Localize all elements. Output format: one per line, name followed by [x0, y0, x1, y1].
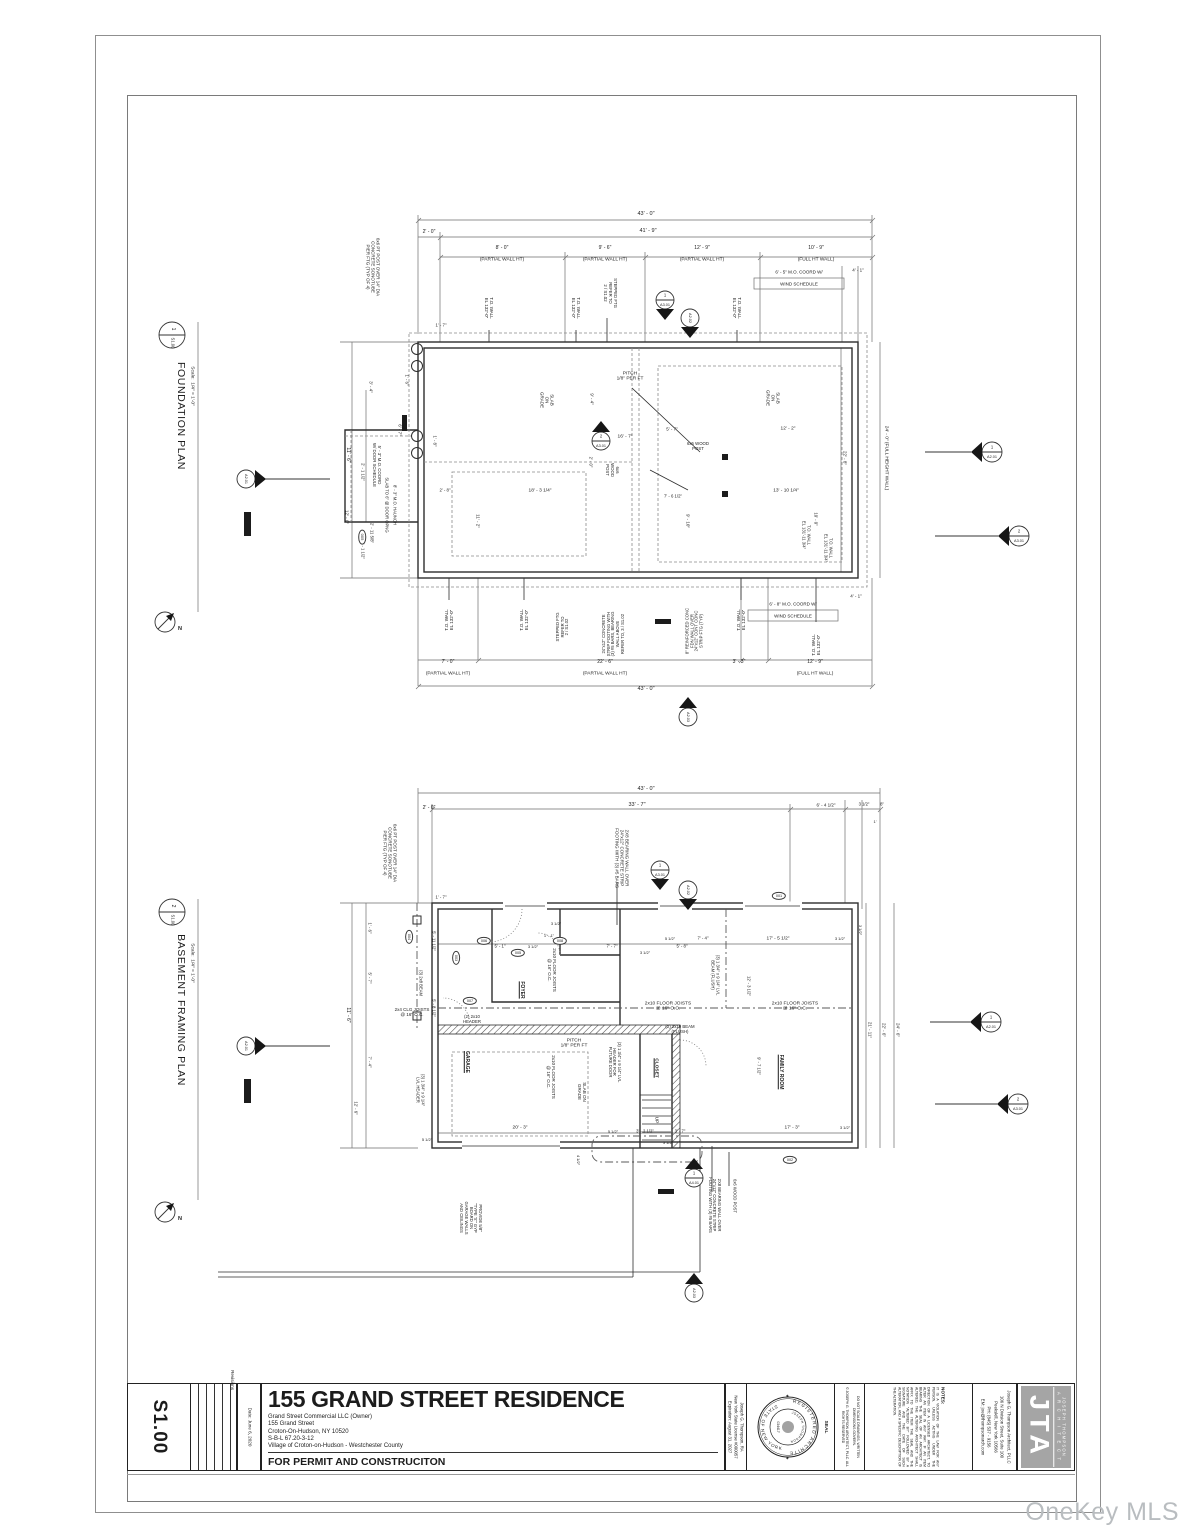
plan2-title: BASEMENT FRAMING PLAN [174, 934, 186, 1086]
plan-annotation: 13' - 10 1/4" [773, 488, 799, 493]
plan-annotation: 1 [991, 446, 993, 451]
plan1-callout-number: 1 [169, 328, 175, 331]
plan-annotation: 2x10 FLOOR JOISTS @ 16" O.C. [772, 1002, 818, 1013]
license-cell: Joseph G. Thompson, RANew York State Lic… [724, 1384, 746, 1470]
plan-annotation: (2) 2x10 BEAM (FLUSH) [665, 1025, 694, 1035]
plan-annotation: 5' - 11 1/2" [431, 931, 436, 951]
plan-annotation: 33' - 7" [628, 802, 645, 808]
firm-monogram: JTA [1026, 1387, 1053, 1467]
plan-annotation: 12' - 0" [344, 510, 349, 524]
plan-annotation: 8" [880, 803, 884, 808]
plan-annotation: (PARTIAL WALL HT) [426, 671, 470, 676]
text-line: 155 Grand Street [268, 1421, 718, 1428]
plan-annotation: A3.01 [1013, 1107, 1023, 1111]
plan-annotation: 16' - 7" [618, 434, 633, 439]
plan-annotation: (FULL HT WALL) [797, 671, 834, 676]
notes-label: NOTES: [940, 1387, 945, 1467]
plan-annotation: 2' - 0" [588, 457, 593, 468]
text-line: Peekskill, New York 10566 [991, 1386, 998, 1468]
plan-annotation: 3 1/2" [640, 951, 650, 955]
plan-annotation: 6x6 WOOD POST [732, 1179, 737, 1213]
plan-annotation: 2' - 0" [423, 806, 436, 812]
text-line: Joseph G. Thompson, RA [739, 1386, 745, 1468]
plan-annotation: A2.01 [987, 455, 997, 459]
plan-annotation: 5' - 7" [666, 426, 677, 431]
plan-annotation: T.O. WALL EL 132'-0" [519, 609, 529, 631]
plan-annotation: 1' - 7" [436, 896, 447, 901]
firm-logo-cell: JOSEPH THOMPSON A R C H I T E C T JTA [1016, 1384, 1074, 1470]
plan-annotation: 43' - 0" [637, 211, 654, 217]
plan-annotation: 3 1/2" [551, 922, 561, 926]
plan-annotation: 41' - 9" [639, 228, 656, 234]
plan-annotation: 11' - 6" [344, 447, 350, 462]
text-line: Grand Street Commercial LLC (Owner) [268, 1414, 718, 1421]
project-info-cell: 155 GRAND STREET RESIDENCE Grand Street … [260, 1384, 724, 1470]
plan-annotation: 5' - 7" [367, 973, 372, 984]
plan-annotation: (3) 1 3/4" x 9 1/4" LVL BEAM (FLUSH) [710, 955, 719, 996]
text-line: Joseph G. Thompson Architect, PLLC [1004, 1386, 1011, 1468]
plan-annotation: 2x10 FLOOR JOISTS @ 16" O.C. [547, 948, 557, 992]
plan-annotation: (3) 2x8 BEAM [418, 970, 423, 996]
plan-annotation: 2 [600, 435, 602, 440]
plan-annotation: 3 1/2" [858, 925, 862, 935]
plan-annotation: 3 1/2" [528, 945, 538, 949]
title-block-divider-line [127, 1474, 1075, 1475]
plan-annotation: 3 1/2" [840, 1126, 850, 1130]
plan-annotation: T.O. WALL EL 132'-0" [736, 609, 746, 631]
plan-annotation: 1 [990, 1016, 992, 1021]
plan-annotation: CLOSET [653, 1058, 658, 1077]
plan-annotation: 6' - 8" M.O. COORD W/ [769, 601, 816, 606]
plan-annotation: GARAGE [463, 1051, 469, 1073]
plan-annotation: T.O. WALL EL 132'-0" [811, 634, 821, 656]
plan-annotation: (PARTIAL WALL HT) [583, 257, 627, 262]
plan-annotation: 1' - 7" [436, 324, 447, 329]
plan-annotation: FAMILY ROOM [777, 1055, 783, 1090]
plan-annotation: 1' - 1" [544, 934, 554, 938]
firm-logo-box: JOSEPH THOMPSON A R C H I T E C T JTA [1021, 1386, 1071, 1468]
plan2-callout-sheet: S1.00 [170, 915, 175, 926]
plan-annotation: 4' - 1" [852, 267, 863, 272]
plan-annotation: T.O. WALL EL 132'-0" [732, 297, 742, 319]
license-info: Joseph G. Thompson, RANew York State Lic… [727, 1386, 744, 1468]
plan-annotation: 22' - 6" [597, 660, 613, 666]
plan-annotation: 1 [693, 1172, 695, 1177]
text-line: 106 N Division Street, Suite 100 [998, 1386, 1005, 1468]
plan-annotation: 22' - 6" [881, 1023, 886, 1037]
plan1-scale: Scale: 1/4" = 1'-0" [189, 366, 194, 405]
plan-annotation: 5' - 8 1/2" [431, 999, 436, 1017]
plan-annotation: A2.02 [688, 313, 692, 323]
plan-annotation: UP [653, 1117, 658, 1124]
firm-logo-content: JOSEPH THOMPSON A R C H I T E C T JTA [1026, 1387, 1067, 1467]
plan-annotation: 2 [1018, 530, 1020, 535]
plan-annotation: (FULL HT WALL) [798, 257, 835, 262]
plan-annotation: 7' - 4" [698, 937, 709, 942]
plan-annotation: (3) 1 3/4" x 9 1/4" LVL HEADER [415, 1074, 424, 1106]
plan-annotation: 6x6 PT POST OVER 14" DIA CONCRETE SONOTU… [365, 238, 380, 296]
plan-annotation: T.O. WALL EL 132'-0" [444, 609, 454, 631]
seal-label: SEAL [823, 1421, 828, 1434]
plan-annotation: 21' - 11" [867, 1022, 872, 1038]
plan-annotation: 1' - 6" [367, 923, 372, 934]
plan-annotation: A2.02 [686, 885, 690, 895]
do-not-scale-note: DO NOT SCALE DRAWINGS. WRITTEN DIMENSION… [851, 1386, 860, 1468]
plan-annotation: PROVIDE 5/8" "TYPE 'X'" GYP BOARD ON GAR… [458, 1201, 482, 1234]
seal-star-right: ★ [785, 1456, 790, 1461]
plan-annotation: (2) 2x10 HEADER [463, 1015, 481, 1025]
plan-annotation: 17' - 5 1/2" [767, 936, 790, 941]
plan-annotation: 2x10 FLOOR JOISTS @ 16" O.C. [546, 1055, 556, 1099]
plan-annotation: A4.01 [689, 1181, 699, 1185]
plan-annotation: 10' - 9" [808, 246, 824, 252]
plan-annotation: 2' - 8" [440, 489, 451, 494]
plan-annotation: 2' - 0" [423, 230, 436, 236]
plan-annotation: 7' - 4" [367, 1057, 372, 1068]
plan-annotation: 6' - 7" [397, 424, 402, 435]
plan-annotation: T.O. WALL EL 132'-0" [484, 297, 494, 319]
plan-annotation: 22' - 8" [842, 451, 847, 465]
plan-annotation: 8' - 0" [496, 246, 509, 252]
plan-annotation: A3.01 [596, 444, 606, 448]
plan-annotation: 1 [659, 864, 661, 869]
project-address: Grand Street Commercial LLC (Owner)155 G… [268, 1414, 718, 1452]
text-line: PH: (845) 537 - 9156 [985, 1386, 992, 1468]
plan-annotation: 5' - 1" [495, 945, 506, 950]
plan-annotation: WIND SCHEDULE [774, 613, 812, 618]
plan-annotation: (3) 1 3/4" x 9 1/4" LVL HEADER FOR FUTUR… [607, 1042, 621, 1083]
plan-annotation: A2.03 [692, 1288, 696, 1298]
plan-annotation: SLAB ON GRADE [539, 392, 554, 408]
plan-annotation: 18' - 3 1/4" [529, 488, 552, 493]
sheet-date: Date: June 6, 2020 [248, 1408, 253, 1447]
plan-annotation: A2.01 [244, 1041, 248, 1051]
plan-annotation: 005 [358, 530, 366, 545]
plan-annotation: 9' - 4" [589, 393, 594, 404]
plan-annotation: SLAB ON GRADE [765, 390, 780, 406]
plan-annotation: 3' - 7" [675, 1130, 686, 1135]
plan-annotation: 17' - 3" [785, 1125, 800, 1130]
plan-annotation: 3' - 4" [368, 381, 373, 392]
project-title: 155 GRAND STREET RESIDENCE [268, 1386, 718, 1413]
plan-annotation: 12' - 9" [694, 246, 710, 252]
plan-annotation: A2.01 [986, 1025, 996, 1029]
sheet-number: S1.00 [148, 1400, 170, 1455]
plan-annotation: N [178, 626, 182, 632]
copyright-note: © JOSEPH G. THOMPSON ARCHITECT, PLLC. AL… [840, 1386, 849, 1468]
plan-annotation: 20' - 3" [513, 1125, 528, 1130]
architect-seal: REGISTERED ARCHITECT STATE OF NEW YORK J… [751, 1390, 825, 1464]
plan-annotation: 3 1/2" [835, 937, 845, 941]
plan-annotation: 4 1/2" [576, 1155, 580, 1165]
plan-annotation: 7' - 6 1/2" [664, 495, 682, 500]
plan-annotation: 2X8 BEARING WALL OVER 24"x12" CONCRETE S… [707, 1177, 721, 1233]
architect-contact-cell: Joseph G. Thompson Architect, PLLC106 N … [972, 1384, 1016, 1470]
plan-annotation: 6' - 4 1/2" [817, 802, 836, 807]
plan-annotation: 3 1/2" [859, 803, 870, 808]
plan1-title: FOUNDATION PLAN [174, 362, 186, 470]
seal-star-left: ★ [785, 1394, 790, 1399]
plan-annotation: 2' - 11 5/8" [369, 523, 374, 543]
fine-print: DO NOT SCALE DRAWINGS. WRITTEN DIMENSION… [838, 1386, 862, 1468]
plan-annotation: 11' - 6" [344, 1007, 350, 1022]
plan-annotation: 9' - 6" [599, 246, 612, 252]
date-cell: Date: June 6, 2020 [236, 1384, 260, 1470]
plan-annotation: 3' - 3" [733, 660, 746, 666]
plan-annotation: A3.01 [1014, 539, 1024, 543]
plan-annotation: A2.01 [244, 474, 248, 484]
plan-annotation: 7' - 0" [442, 660, 455, 666]
plan-annotation: 24' - 6" [895, 1023, 900, 1037]
plan-annotation: 12' - 6" [353, 1101, 358, 1114]
plan-annotation: 6x6 WOOD POST [687, 442, 709, 452]
plan-annotation: T.O. WALL EL 131'-11 3/4" [823, 534, 832, 562]
sheet-number-cell: S1.00 [128, 1384, 190, 1470]
seal-license-number: 034417 [776, 1421, 780, 1432]
revisions-table: Revisions [190, 1384, 236, 1470]
plan-annotation: 1' - 8" [432, 436, 437, 447]
plan-annotation: PITCH 1/8" PER FT [617, 372, 644, 383]
plan-annotation: 6x6 WOOD POST [605, 463, 619, 477]
firm-discipline: A R C H I T E C T [1054, 1387, 1062, 1467]
plan-annotation: 5 1/2" [422, 1138, 432, 1142]
plan-annotation: 6' - 5" M.O. COORD W/ [775, 269, 822, 274]
plan-annotation: (PARTIAL WALL HT) [480, 257, 524, 262]
plan2-callout-number: 2 [169, 905, 175, 908]
plan-annotation: STEPPED FTG REFER TO 2 / S1.02 [556, 612, 570, 641]
plan-annotation: WIND SCHEDULE [780, 281, 818, 286]
plan-annotation: 1 [664, 294, 666, 299]
plan-annotation: 2x4 CLG JOISTS @ 16" O.C. [395, 1007, 430, 1017]
plan-annotation: PITCH 1/8" PER FT [561, 1039, 588, 1050]
plan-annotation: SLAB TO 6" @ DOOR OPNG [384, 477, 389, 532]
plan-annotation: 2X8 BEARING WALL OVER 24"x12" CONCRETE S… [614, 828, 629, 888]
plan-annotation: 1' - 6" [404, 375, 409, 386]
text-line: Croton-On-Hudson, NY 10520 [268, 1429, 718, 1436]
plan-annotation: 12' - 9" [807, 660, 823, 666]
plan-annotation: A3.01 [655, 873, 665, 877]
fine-print-cell: DO NOT SCALE DRAWINGS. WRITTEN DIMENSION… [834, 1384, 864, 1470]
plan-annotation: T.O. WALL EL 131'-11 3/4" [801, 521, 810, 549]
plan-annotation: A2.03 [686, 712, 690, 722]
plan-annotation: 10' - 0" [813, 512, 818, 525]
plan-annotation: 2' - 1 1/2" [360, 463, 365, 481]
plan-annotation: 24"x12" CONCRETE STRIP FOOTING WITH (3) … [602, 612, 626, 657]
sheet-page: 1 S1.00 FOUNDATION PLAN Scale: 1/4" = 1'… [0, 0, 1187, 1536]
text-line: Village of Croton-on-Hudson - Westcheste… [268, 1443, 718, 1450]
plan-annotation: 5 1/2" [665, 937, 675, 941]
plan-annotation: 2 [1017, 1098, 1019, 1103]
plan-annotation: (PARTIAL WALL HT) [583, 671, 627, 676]
plan-annotation: 2x10 FLOOR JOISTS @ 16" O.C. [645, 1002, 691, 1013]
plan-annotation: 8' - 3" M.O. HAUNCH [392, 485, 397, 525]
plan-annotation: 24' - 0" (FULL HEIGHT WALL) [883, 426, 888, 491]
plan-annotation: 7' - 7" [607, 945, 618, 950]
notes-body: IT IS A VIOLATION OF THE LAW FOR ANY PER… [892, 1387, 939, 1467]
plan-annotation: A3.01 [660, 303, 670, 307]
plan-annotation: 11' - 2" [475, 514, 480, 528]
issue-status: FOR PERMIT AND CONSTRUCITON [268, 1452, 718, 1468]
architect-contact: Joseph G. Thompson Architect, PLLC106 N … [978, 1386, 1011, 1468]
revisions-label: Revisions [230, 1370, 235, 1390]
plan-annotation: SLAB ON GRADE [577, 1082, 587, 1102]
notes-block: NOTES: IT IS A VIOLATION OF THE LAW FOR … [892, 1387, 945, 1467]
seal-cell: REGISTERED ARCHITECT STATE OF NEW YORK J… [746, 1384, 834, 1470]
plan-annotation: 5 1/2" [608, 1130, 618, 1134]
plan-annotation: T.O. WALL EL 132'-0" [571, 297, 581, 319]
plan-annotation: N [178, 1216, 182, 1222]
firm-name-vertical: JOSEPH THOMPSON [1061, 1387, 1066, 1467]
plan-annotation: 9' - 10" [685, 514, 690, 528]
text-line: EM: joe@thompsonarch.com [978, 1386, 985, 1468]
plan-annotation: FOYER [518, 981, 524, 998]
plan-annotation: 3 1/2" [663, 1141, 673, 1145]
plan-annotation: 3' - 2 1/2" [636, 1130, 654, 1135]
plan-annotation: (PARTIAL WALL HT) [680, 257, 724, 262]
plan-annotation: 4' - 1" [850, 593, 861, 598]
plan-annotation: 12' - 3 1/2" [746, 976, 751, 996]
plan-annotation: 9' - 7 1/2" [756, 1057, 761, 1075]
plan2-scale: Scale: 1/4" = 1'-0" [189, 943, 194, 982]
text-line: New York State License #000057 [733, 1386, 739, 1468]
text-line: S-B-L 67.20-3-12 [268, 1436, 718, 1443]
plan-annotation: 5' - 3" M.O. COORD W/ DOOR SCHEDULE [371, 443, 381, 487]
plan-annotation: 12' - 2" [781, 426, 796, 431]
plan-annotation: 6x6 PT POST OVER 14" DIA CONCRETE SONOTU… [382, 824, 397, 882]
plan-annotation: 5' - 8" [677, 945, 688, 950]
plan-annotation: 1' [874, 820, 877, 824]
plan-annotation: STEPPED FTG REFER TO 2 / S1.02 [603, 278, 617, 308]
plan-annotation: 8" REINFORCED CONC FDN WALL OVER 24"x12"… [686, 608, 705, 654]
title-block: S1.00 Revisions Date: June 6, 2020 155 G… [127, 1383, 1075, 1471]
notes-cell: NOTES: IT IS A VIOLATION OF THE LAW FOR … [864, 1384, 972, 1470]
onekey-mls-watermark: OneKey MLS [1025, 1498, 1179, 1527]
plan-annotation: 43' - 0" [637, 686, 654, 692]
plan1-callout-sheet: S1.00 [170, 338, 175, 349]
plan-annotation: 43' - 0" [637, 786, 654, 792]
